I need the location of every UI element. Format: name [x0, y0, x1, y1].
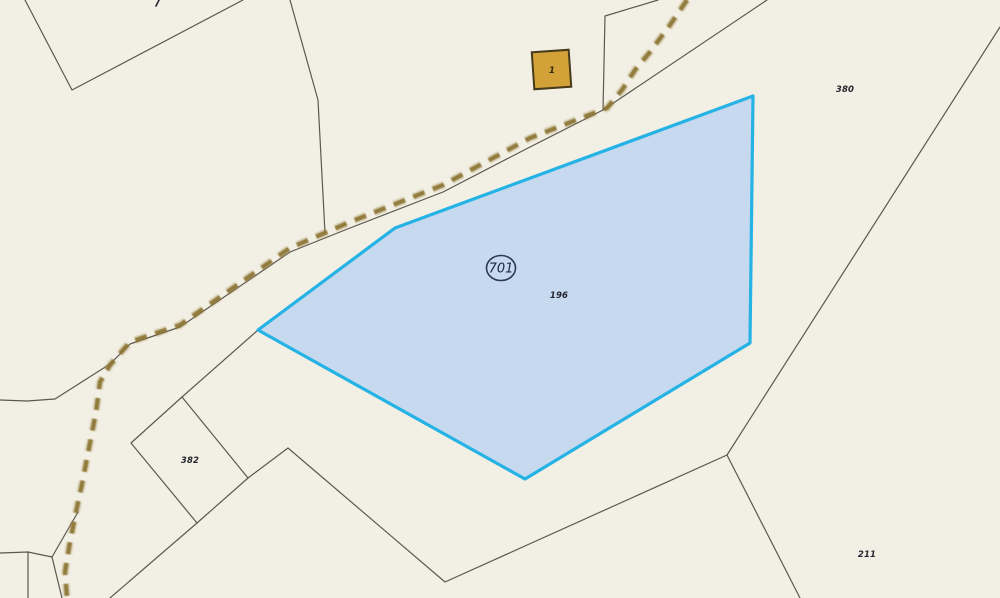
parcel-id-badge-label: 701	[489, 262, 514, 277]
selected-parcel-area-label: 196	[550, 291, 568, 301]
map-viewport[interactable]: 1380382211196701	[0, 0, 1000, 598]
map-canvas[interactable]: 1380382211196701	[0, 0, 1000, 598]
parcel-label-211: 211	[858, 550, 876, 560]
parcel-label-382: 382	[181, 456, 199, 466]
parcel-label-380: 380	[836, 85, 854, 95]
building-label: 1	[549, 66, 555, 76]
